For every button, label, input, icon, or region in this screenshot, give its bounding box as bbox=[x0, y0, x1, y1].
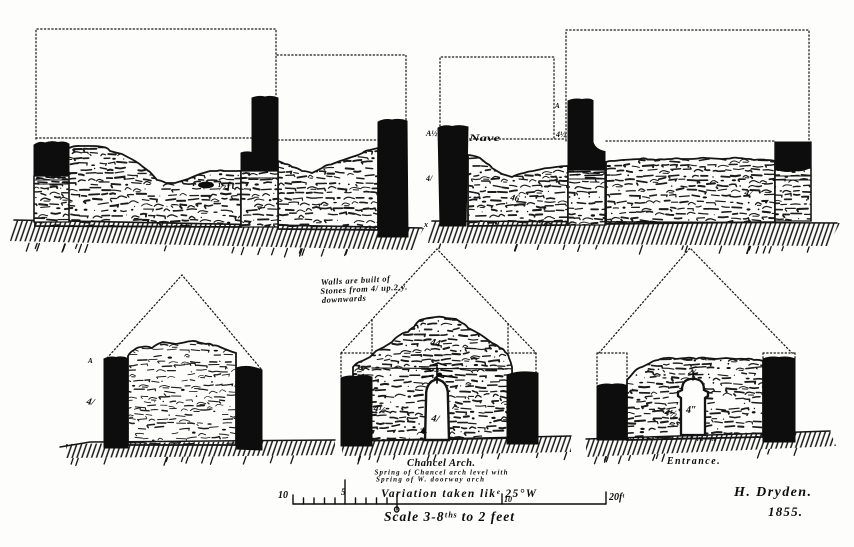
svg-text:Variation taken likᵉ 25°W: Variation taken likᵉ 25°W bbox=[381, 488, 537, 500]
svg-text:A: A bbox=[87, 357, 93, 365]
svg-text:44: 44 bbox=[428, 337, 441, 350]
svg-text:A½: A½ bbox=[425, 129, 437, 138]
svg-text:ra—m: ra—m bbox=[697, 435, 716, 443]
svg-text:4″: 4″ bbox=[685, 405, 697, 416]
svg-text:H. Dryden.: H. Dryden. bbox=[733, 485, 811, 500]
svg-text:4/: 4/ bbox=[425, 174, 433, 183]
svg-text:Chancel Arch.: Chancel Arch. bbox=[407, 458, 475, 469]
svg-text:½ƒt: ½ƒt bbox=[217, 180, 236, 193]
svg-text:10: 10 bbox=[504, 495, 512, 504]
svg-text:Spring of W. doorway arch: Spring of W. doorway arch bbox=[376, 476, 484, 484]
svg-text:A: A bbox=[554, 102, 560, 110]
svg-text:Nave: Nave bbox=[467, 134, 501, 144]
svg-text:5: 5 bbox=[341, 487, 346, 497]
svg-text:Entrance.: Entrance. bbox=[666, 456, 721, 467]
svg-text:x: x bbox=[688, 431, 694, 441]
svg-text:10: 10 bbox=[278, 490, 288, 501]
svg-text:x: x bbox=[423, 220, 428, 229]
svg-text:4½: 4½ bbox=[555, 130, 566, 139]
svg-text:20fᵗ: 20fᵗ bbox=[608, 492, 625, 503]
svg-text:1855.: 1855. bbox=[768, 504, 802, 519]
svg-text:Scale 3-8ᵗʰˢ to 2 feet: Scale 3-8ᵗʰˢ to 2 feet bbox=[384, 509, 515, 524]
